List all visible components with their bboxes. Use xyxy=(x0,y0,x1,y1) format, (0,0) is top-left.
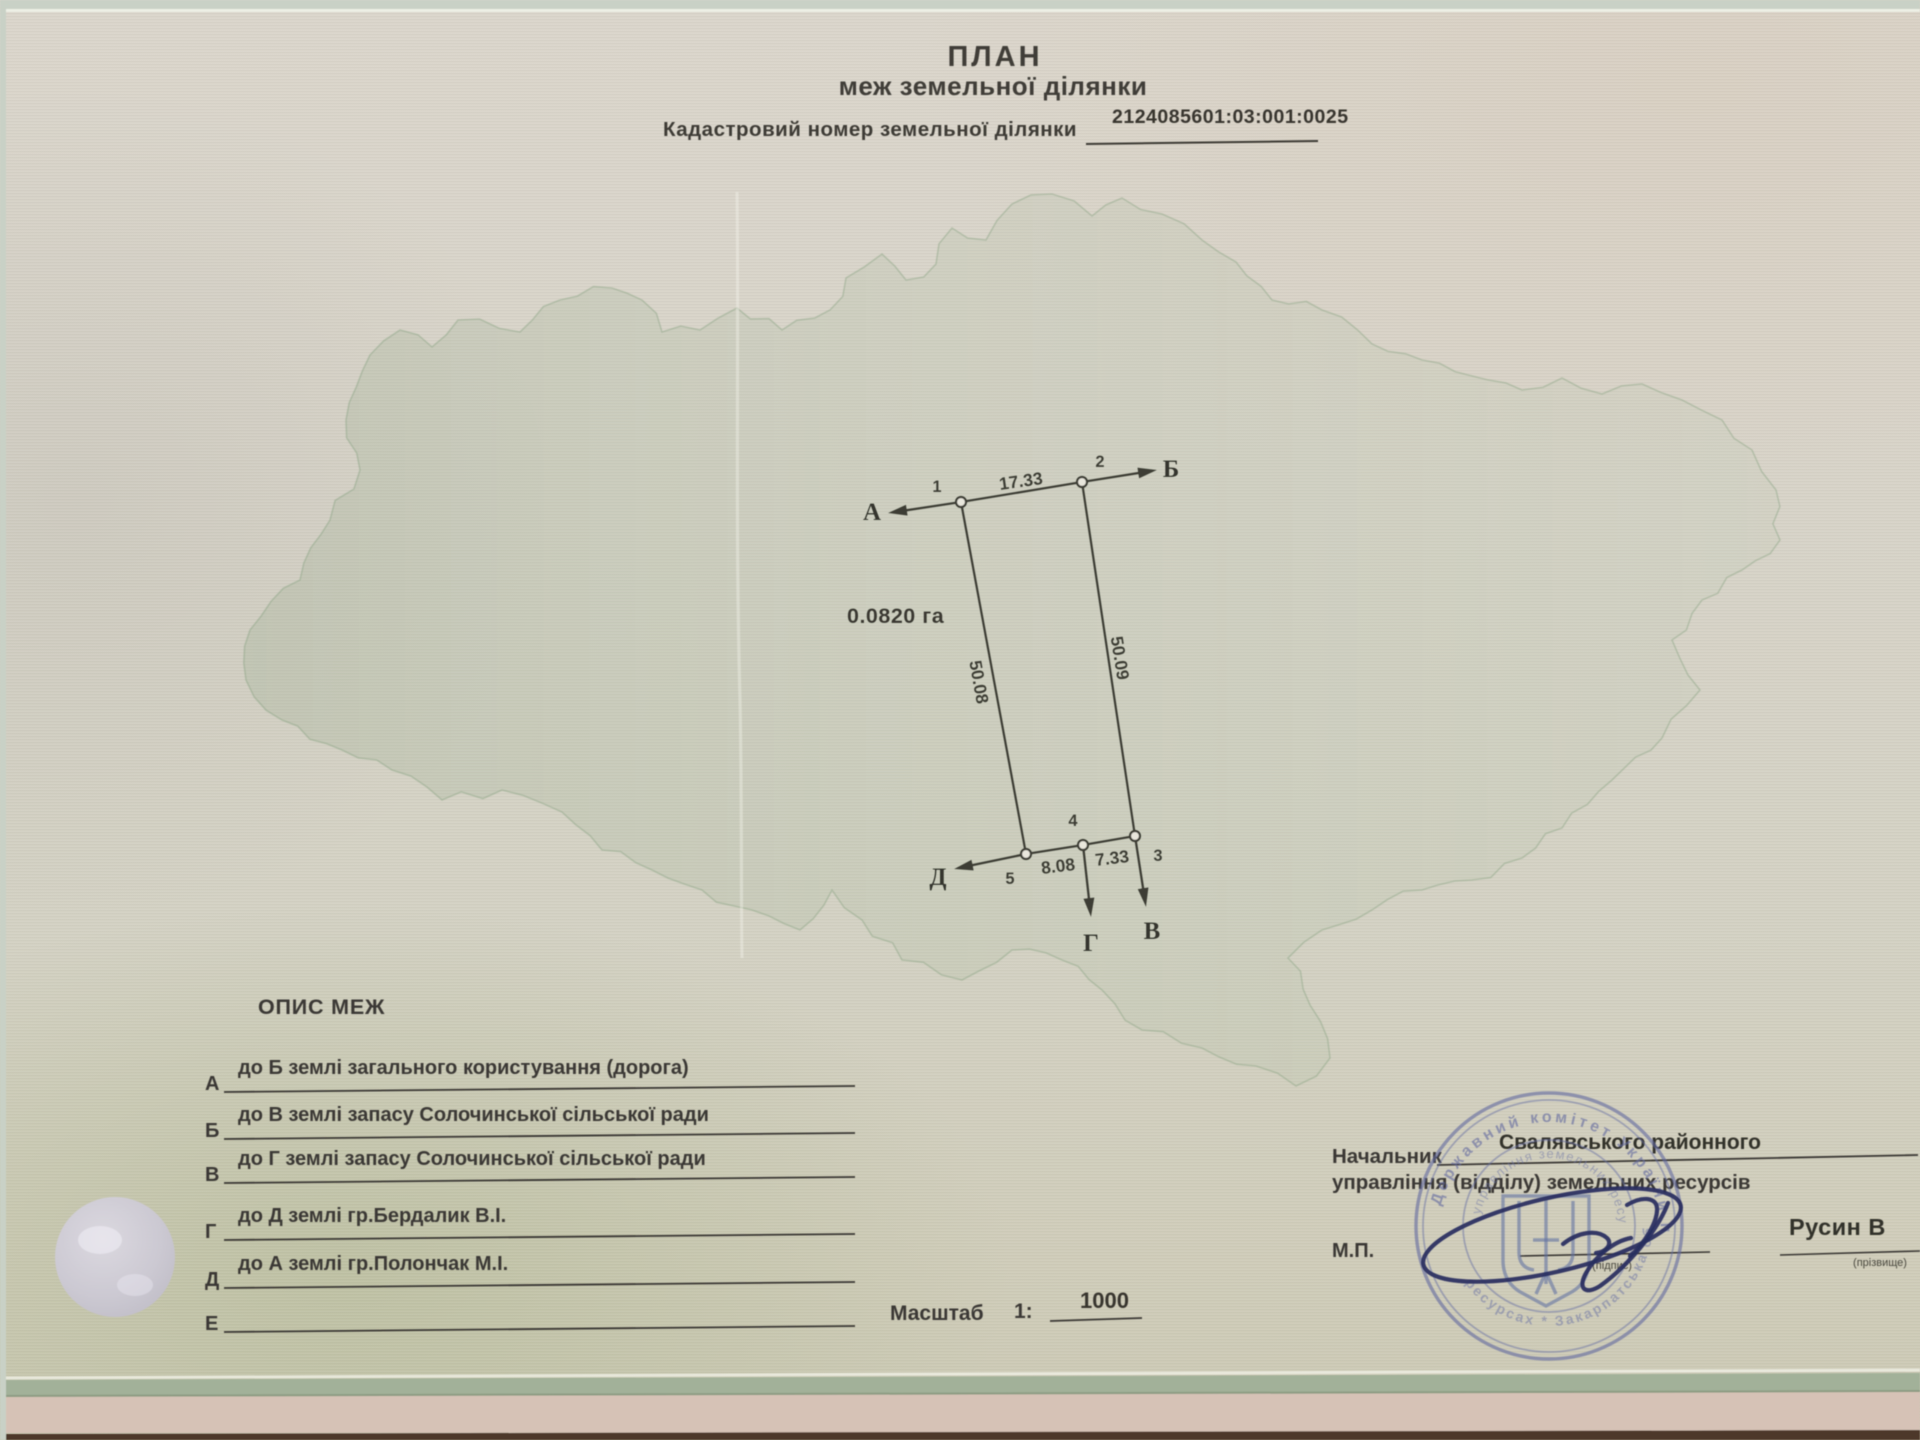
svg-text:7.33: 7.33 xyxy=(1094,846,1131,870)
svg-text:5: 5 xyxy=(1005,870,1014,888)
svg-text:меж земельної ділянки: меж земельної ділянки xyxy=(839,71,1148,101)
svg-text:Масштаб: Масштаб xyxy=(890,1302,984,1325)
svg-text:В: В xyxy=(1144,918,1161,945)
svg-text:до А землі гр.Полончак М.І.: до А землі гр.Полончак М.І. xyxy=(238,1253,508,1275)
svg-text:4: 4 xyxy=(1068,812,1078,830)
svg-text:Г: Г xyxy=(1083,930,1099,957)
svg-text:Б: Б xyxy=(1163,456,1180,483)
svg-text:В: В xyxy=(205,1164,219,1186)
svg-text:А: А xyxy=(863,499,881,526)
svg-text:управління (відділу) земельних: управління (відділу) земельних ресурсів xyxy=(1332,1171,1750,1194)
svg-text:Д: Д xyxy=(929,864,946,891)
svg-text:Начальник: Начальник xyxy=(1332,1145,1443,1168)
svg-text:ОПИС МЕЖ: ОПИС МЕЖ xyxy=(258,995,385,1019)
svg-text:Кадастровий номер земельної ді: Кадастровий номер земельної ділянки xyxy=(663,118,1077,141)
svg-text:до Д землі гр.Бердалик В.І.: до Д землі гр.Бердалик В.І. xyxy=(238,1205,506,1227)
svg-text:1000: 1000 xyxy=(1080,1288,1129,1313)
svg-text:Д: Д xyxy=(205,1269,219,1291)
svg-text:Г: Г xyxy=(205,1221,216,1243)
svg-text:А: А xyxy=(205,1073,219,1095)
svg-text:М.П.: М.П. xyxy=(1332,1240,1374,1262)
svg-text:Б: Б xyxy=(205,1120,219,1142)
svg-text:до В землі запасу Солочинської: до В землі запасу Солочинської сільської… xyxy=(238,1104,709,1126)
svg-text:ПЛАН: ПЛАН xyxy=(947,41,1042,73)
svg-text:8.08: 8.08 xyxy=(1040,854,1077,878)
svg-text:Русин В: Русин В xyxy=(1789,1214,1886,1240)
svg-text:до Г землі запасу Солочинської: до Г землі запасу Солочинської сільської… xyxy=(238,1148,706,1170)
svg-text:1: 1 xyxy=(932,478,941,496)
svg-text:Е: Е xyxy=(205,1313,218,1335)
svg-text:(прізвище): (прізвище) xyxy=(1853,1257,1907,1269)
svg-text:до Б землі загального користув: до Б землі загального користування (доро… xyxy=(238,1057,689,1079)
svg-text:1:: 1: xyxy=(1014,1300,1033,1323)
svg-text:3: 3 xyxy=(1153,847,1162,865)
svg-text:2124085601:03:001:0025: 2124085601:03:001:0025 xyxy=(1112,106,1349,128)
svg-text:0.0820 га: 0.0820 га xyxy=(847,604,945,628)
svg-text:2: 2 xyxy=(1095,453,1104,471)
